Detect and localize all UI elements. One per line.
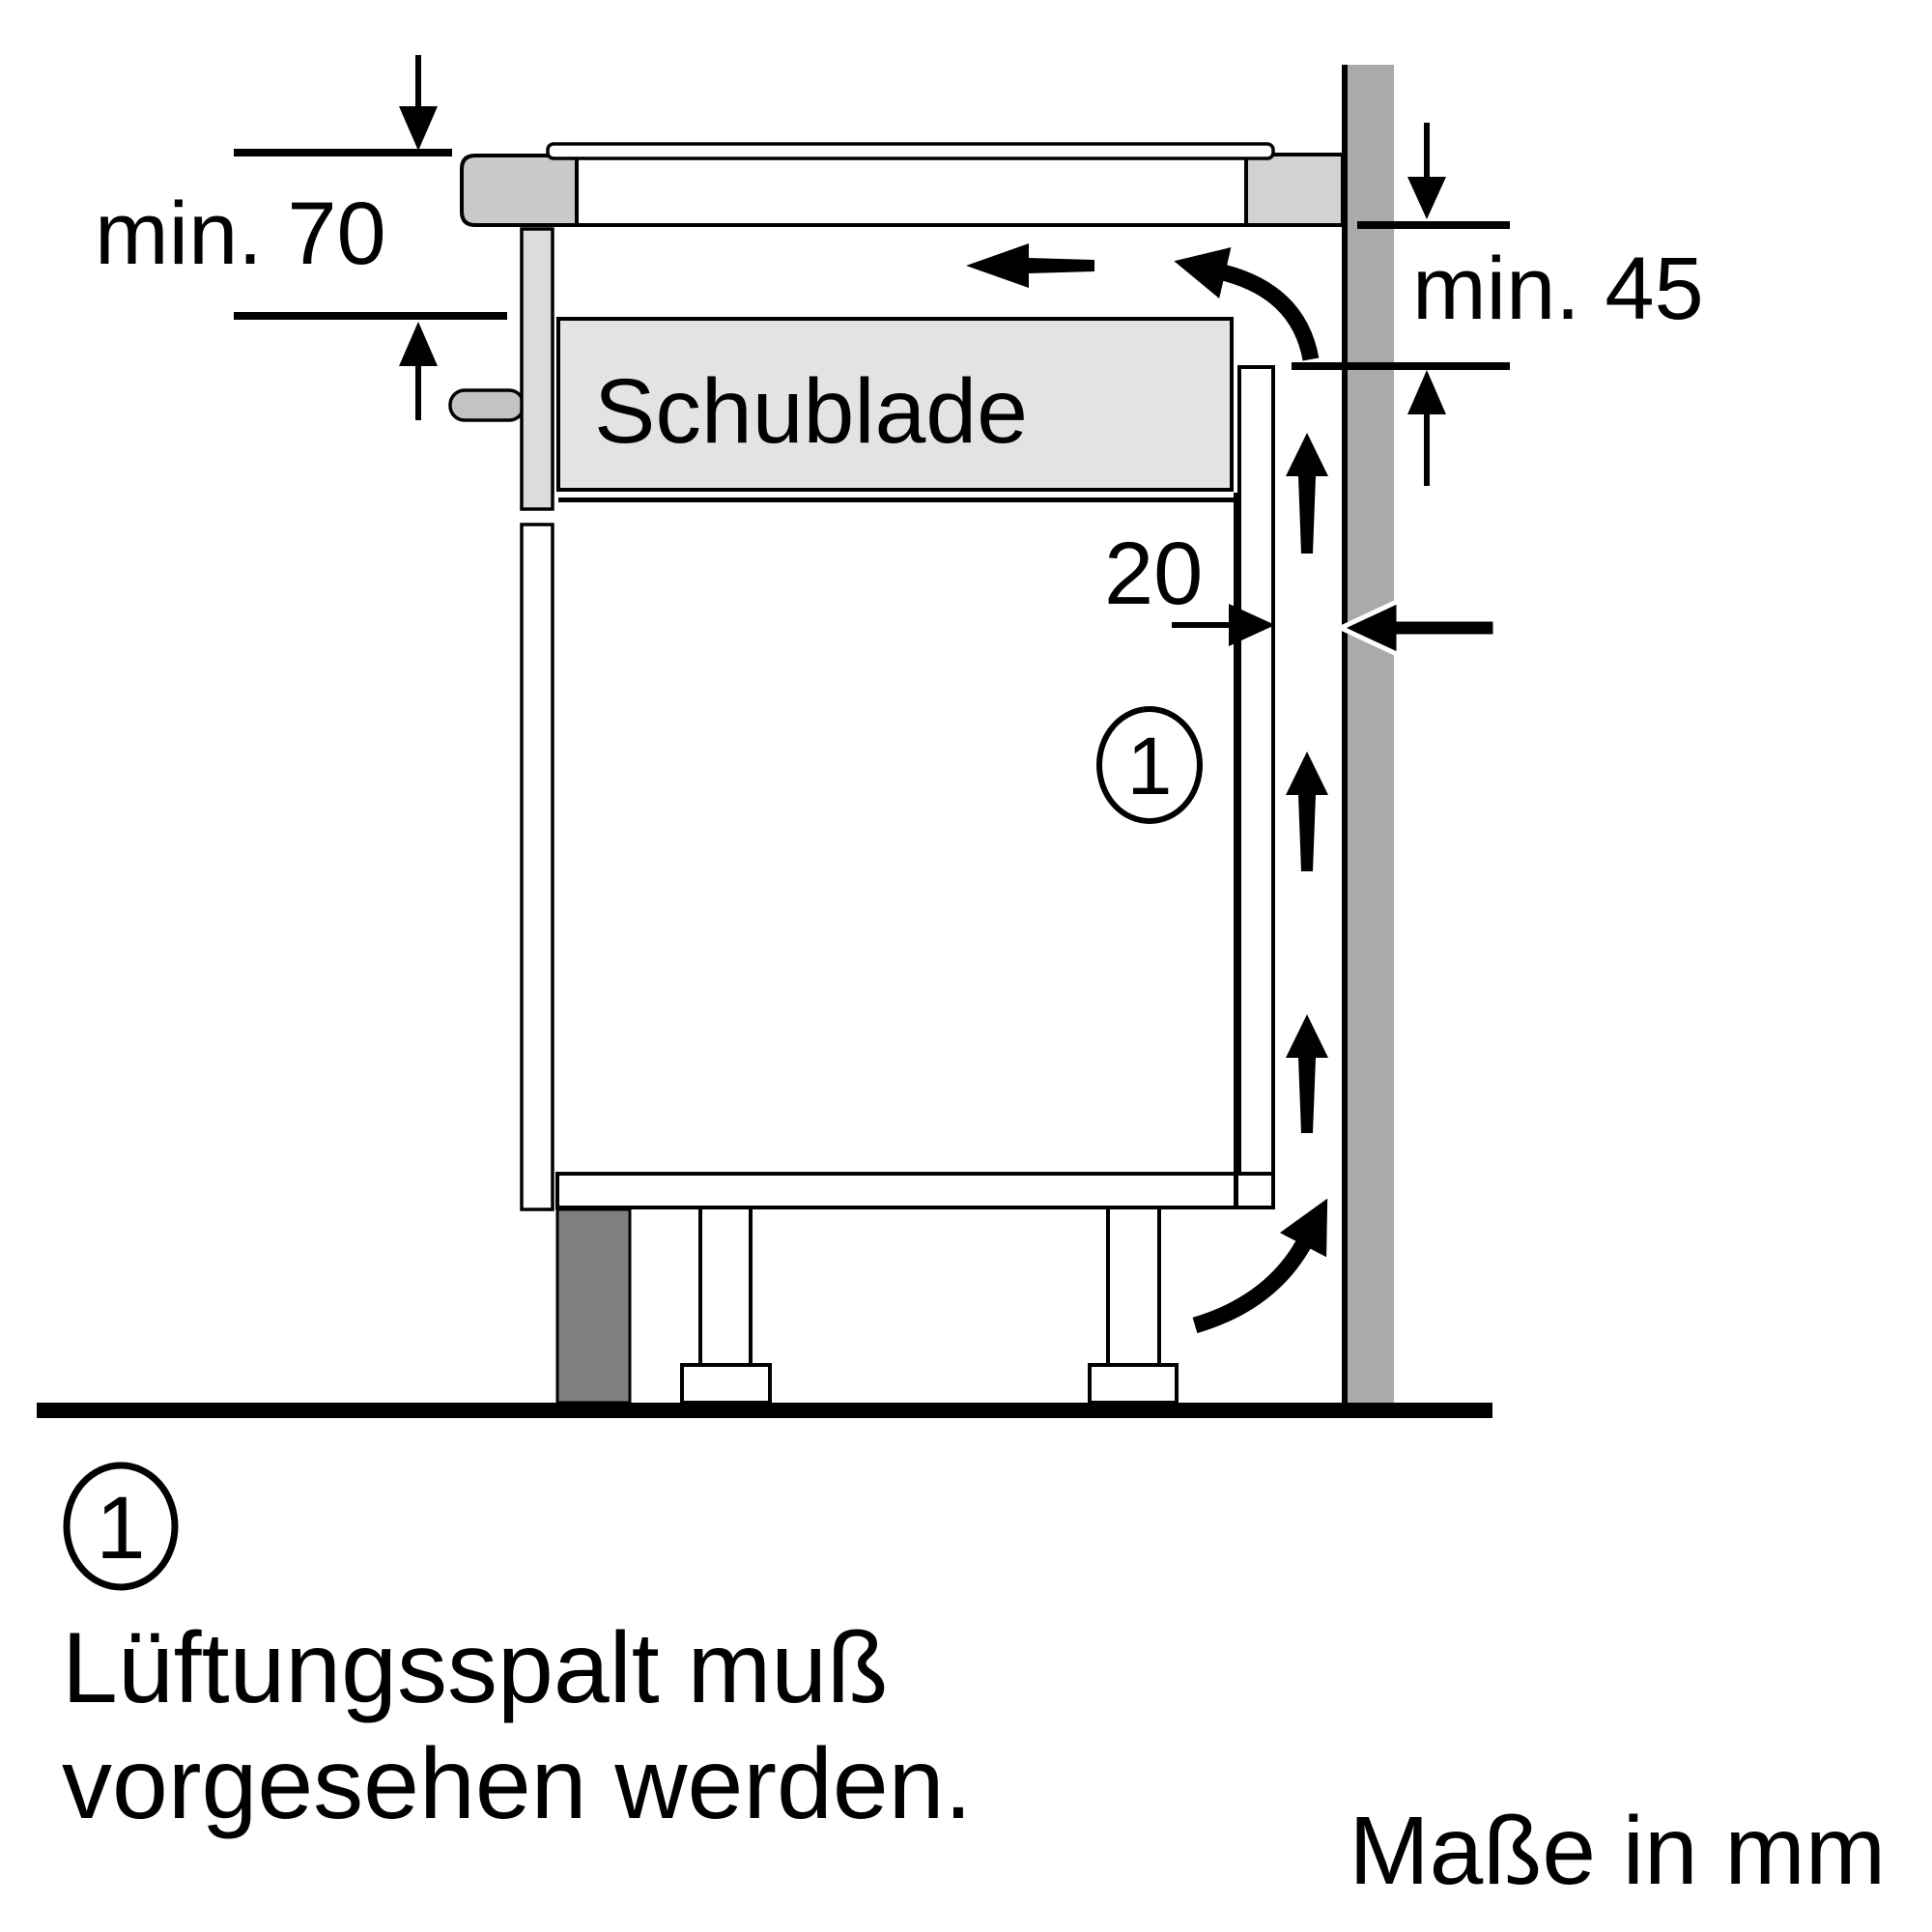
min70-up-arrow-icon: [399, 322, 438, 366]
wall-face-line: [1342, 65, 1348, 1403]
min45-up-arrow-icon: [1407, 370, 1446, 414]
legend-marker: 1: [96, 1479, 145, 1577]
legend-line2: vorgesehen werden.: [62, 1728, 972, 1840]
min45-upper-dim-line: [1357, 221, 1510, 229]
dimension-min70: min. 70: [95, 55, 507, 420]
plinth: [557, 1209, 630, 1403]
min70-down-arrow-icon: [399, 106, 438, 151]
rear-leg: [1108, 1207, 1159, 1365]
legend: 1 Lüftungsspalt muß vorgesehen werden.: [62, 1465, 972, 1840]
min45-up-arrow-shaft: [1424, 414, 1430, 486]
rear-leg-foot: [1090, 1365, 1177, 1403]
drawer-handle: [450, 390, 524, 420]
airflow-left-arrow-icon: [966, 243, 1029, 288]
callout-1: 1: [1099, 709, 1200, 821]
cabinet-bottom-shelf: [557, 1174, 1273, 1207]
gap20-right-arrow-shaft: [1172, 622, 1230, 628]
airflow-left-arrow-tail: [1029, 258, 1094, 273]
min45-label: min. 45: [1412, 240, 1704, 338]
min70-label: min. 70: [95, 185, 386, 283]
drawer-front-panel: [522, 229, 553, 509]
cabinet-base: [557, 1174, 1273, 1403]
worktop-assembly: [462, 144, 1343, 225]
airflow-up-arrow-2-icon: [1286, 752, 1328, 871]
min70-lower-dim-line: [234, 312, 507, 320]
min70-upper-dim-line: [234, 149, 452, 156]
min70-down-arrow-shaft: [415, 55, 421, 111]
airflow-up-arrow-3-icon: [1286, 1014, 1328, 1133]
installation-diagram: Schublade min. 70 min. 45 20: [0, 0, 1932, 1932]
hob-body: [462, 156, 577, 225]
wall: [1348, 65, 1394, 1403]
rear-vent-board: [1239, 367, 1273, 1174]
front-leg: [700, 1207, 751, 1367]
airflow-curve-bottom-icon: [1195, 1239, 1306, 1325]
min70-up-arrow-shaft: [415, 366, 421, 420]
drawer-shelf-line: [558, 497, 1237, 502]
airflow-up-arrow-1-icon: [1286, 433, 1328, 554]
min45-down-arrow-shaft: [1424, 123, 1430, 181]
worktop: [577, 155, 1246, 225]
dimension-vent-gap-20: 20: [1104, 525, 1495, 655]
cabinet-door-panel: [522, 525, 553, 1209]
units-note: Maße in mm: [1349, 1797, 1886, 1905]
gap20-label: 20: [1104, 525, 1203, 623]
hob-glass-top: [548, 144, 1273, 158]
min45-down-arrow-icon: [1407, 177, 1446, 219]
front-leg-foot: [682, 1365, 770, 1403]
floor-line: [37, 1403, 1492, 1418]
legend-line1: Lüftungsspalt muß: [62, 1612, 889, 1724]
callout-number: 1: [1127, 721, 1173, 811]
min45-lower-dim-line: [1292, 362, 1510, 370]
worktop-wall-end: [1246, 155, 1343, 225]
drawer-label: Schublade: [594, 360, 1028, 463]
wall-section: [1342, 65, 1394, 1403]
